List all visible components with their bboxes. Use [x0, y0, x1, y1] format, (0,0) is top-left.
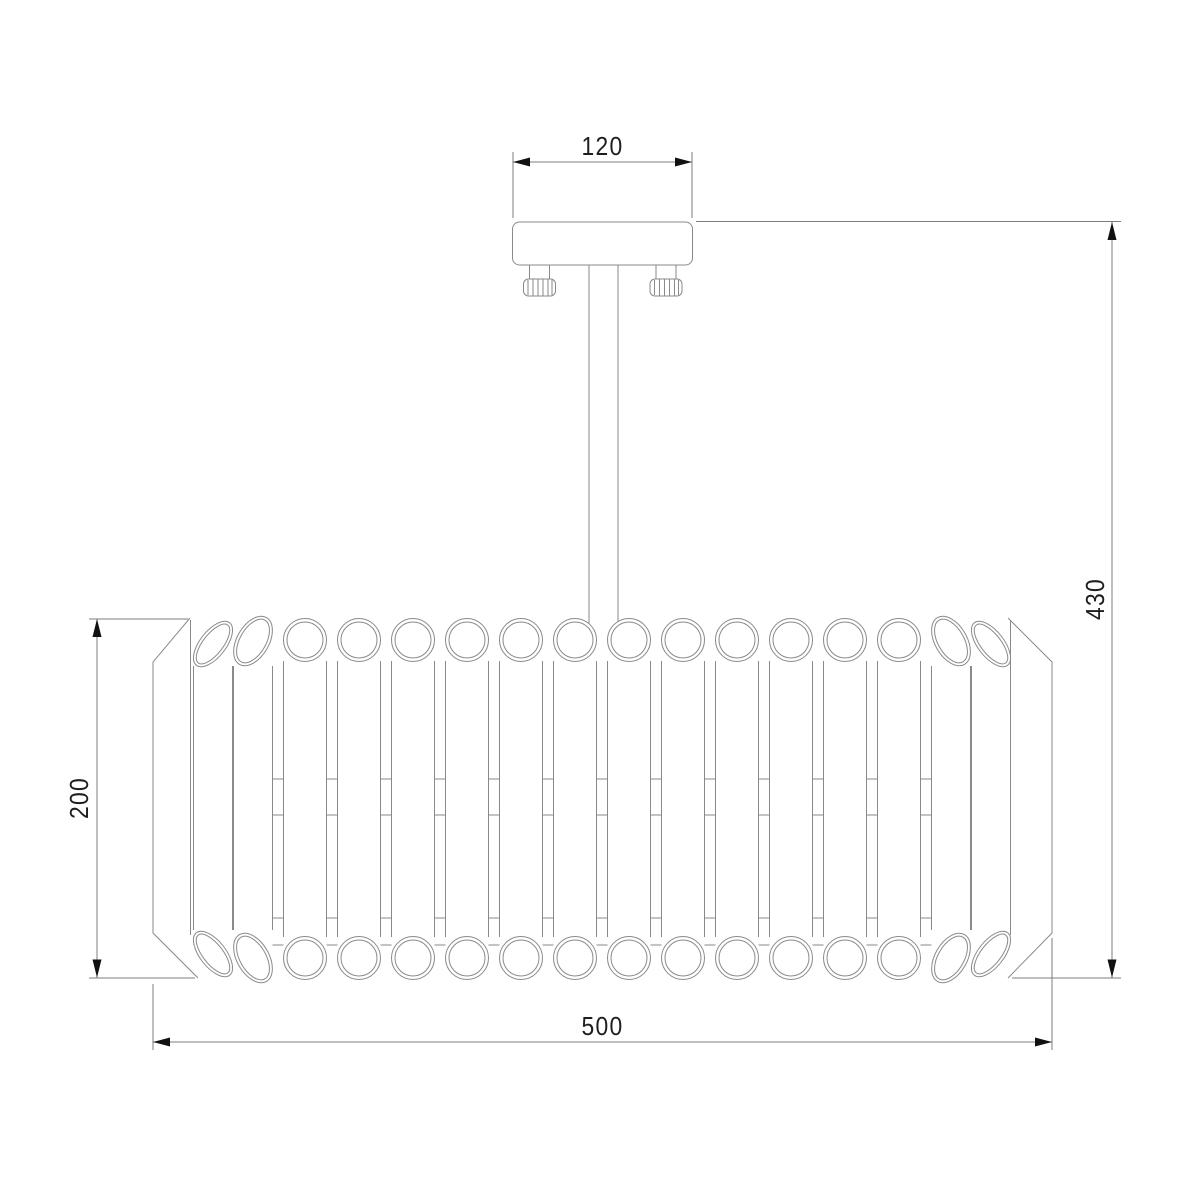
arrowhead-left: [513, 158, 530, 167]
tube-top-rim-outer: [878, 619, 921, 662]
canopy: [513, 222, 693, 296]
tube-top-rim-outer: [770, 619, 813, 662]
tube-bottom-rim-outer: [392, 937, 435, 980]
dim-shade-width-label: 500: [581, 1013, 623, 1042]
tube-bottom-rim-outer: [770, 937, 813, 980]
arrowhead-right: [1035, 1038, 1052, 1047]
tube-bottom-rim-angled-outer: [924, 927, 979, 990]
tube-top-rim-outer: [608, 619, 651, 662]
canopy-plate: [513, 222, 693, 265]
tube-top-rim-outer: [554, 619, 597, 662]
tube-top-rim-outer: [446, 619, 489, 662]
tube-top-rim-outer: [284, 619, 327, 662]
dim-shade-height-label: 200: [66, 777, 95, 819]
dimension-fixture-height: 430: [696, 222, 1121, 979]
tube-top-rim-outer: [338, 619, 381, 662]
tube-bottom-rim-angled-outer: [964, 925, 1018, 984]
tube-top-rim-angled-outer: [186, 615, 240, 674]
tube-top-rim-outer: [824, 619, 867, 662]
tube-bottom-rim-outer: [824, 937, 867, 980]
tube-bottom-rim-outer: [662, 937, 705, 980]
tube-bottom-rim-outer: [500, 937, 543, 980]
arrowhead-up: [1108, 222, 1117, 240]
mounting-screw-left: [524, 265, 556, 296]
tube-bottom-rim-angled-outer: [226, 927, 281, 990]
screw-stem: [656, 265, 676, 279]
arrowhead-down: [93, 960, 102, 978]
dimension-shade-height: 200: [66, 619, 195, 978]
tube-bottom-rim-outer: [446, 937, 489, 980]
tube-top-rim-outer: [500, 619, 543, 662]
arrowhead-left: [153, 1038, 170, 1047]
dim-fixture-height-label: 430: [1082, 578, 1111, 620]
mounting-screw-right: [650, 265, 682, 296]
tube-bottom-rim-outer: [716, 937, 759, 980]
dimension-canopy-width: 120: [513, 133, 692, 218]
tube-top-rim-outer: [392, 619, 435, 662]
tube-top-rim-outer: [716, 619, 759, 662]
drawing-canvas: 120 430 200 500: [0, 0, 1200, 1200]
shade-end-cap-right: [1008, 618, 1052, 978]
tube-bottom-rim-outer: [284, 937, 327, 980]
tube-bottom-rim-outer: [554, 937, 597, 980]
tube-top-rim-angled-outer: [924, 610, 979, 673]
crystal-shade-drum: [153, 610, 1052, 990]
tube-bottom-rim-outer: [608, 937, 651, 980]
arrowhead-right: [675, 158, 692, 167]
arrowhead-up: [93, 619, 102, 637]
tube-bottom-rim-outer: [338, 937, 381, 980]
dim-canopy-width-label: 120: [581, 133, 623, 162]
tube-top-rim-angled-outer: [964, 615, 1018, 674]
stem-rod: [589, 265, 618, 640]
crystal-tubes: [186, 610, 1018, 990]
tube-top-rim-outer: [662, 619, 705, 662]
screw-stem: [530, 265, 550, 279]
technical-drawing-page: 120 430 200 500: [0, 0, 1200, 1200]
shade-end-cap-left: [153, 618, 198, 978]
arrowhead-down: [1108, 960, 1117, 978]
tube-top-rim-angled-outer: [226, 610, 281, 673]
tube-bottom-rim-outer: [878, 937, 921, 980]
